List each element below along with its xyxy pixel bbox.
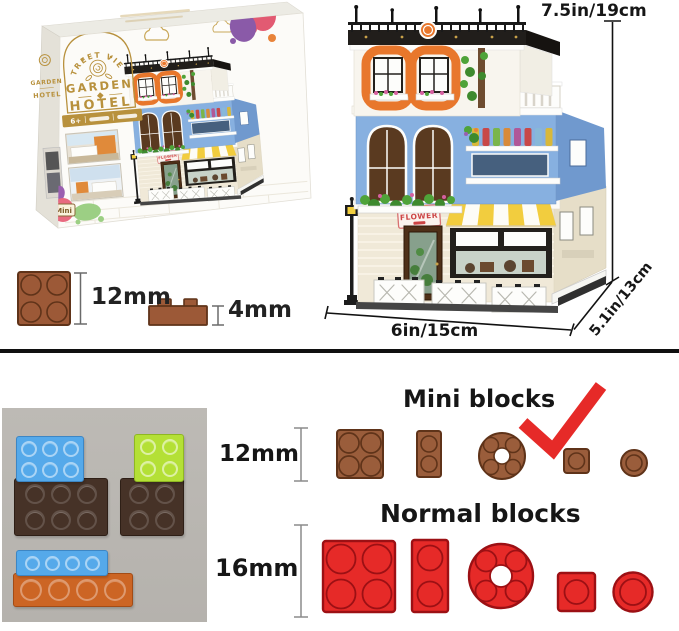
checkmark-icon	[523, 386, 601, 450]
stud-pitch-label: 12mm	[91, 284, 171, 310]
stud-pitch-measure	[74, 273, 87, 324]
mini-rect-1x2	[417, 431, 441, 477]
inset-photo-bedroom	[66, 130, 120, 164]
normal-rect-1x2	[412, 540, 448, 612]
normal-round-donut	[469, 544, 533, 608]
width-dimension-label: 6in/15cm	[372, 321, 497, 341]
mini-block-shapes	[337, 430, 647, 479]
block-comparison-graphic	[0, 353, 679, 631]
mini-round-donut	[479, 433, 525, 479]
product-box: GARDEN HOTEL	[0, 0, 311, 233]
mini-size-measure	[294, 428, 308, 481]
normal-round-1x1	[614, 573, 653, 612]
mini-square-2x2	[337, 430, 383, 478]
plate-height-label: 4mm	[228, 297, 292, 323]
normal-block-shapes	[323, 540, 653, 612]
building-model-main	[344, 5, 606, 313]
plate-height-measure	[212, 306, 224, 325]
normal-square-2x2	[323, 541, 395, 612]
height-dimension-label: 7.5in/19cm	[541, 1, 647, 21]
mini-square-1x1	[564, 449, 589, 473]
inset-photo-kitchen	[69, 164, 124, 201]
normal-size-measure	[294, 525, 308, 617]
blue-1x4-brick	[16, 550, 108, 576]
age-banner-text: 6+	[70, 117, 82, 126]
product-infographic: FLOWER	[0, 0, 679, 631]
stud-pitch-brick-icon	[18, 272, 70, 325]
normal-square-1x1	[558, 573, 595, 611]
mini-round-1x1	[621, 450, 647, 476]
